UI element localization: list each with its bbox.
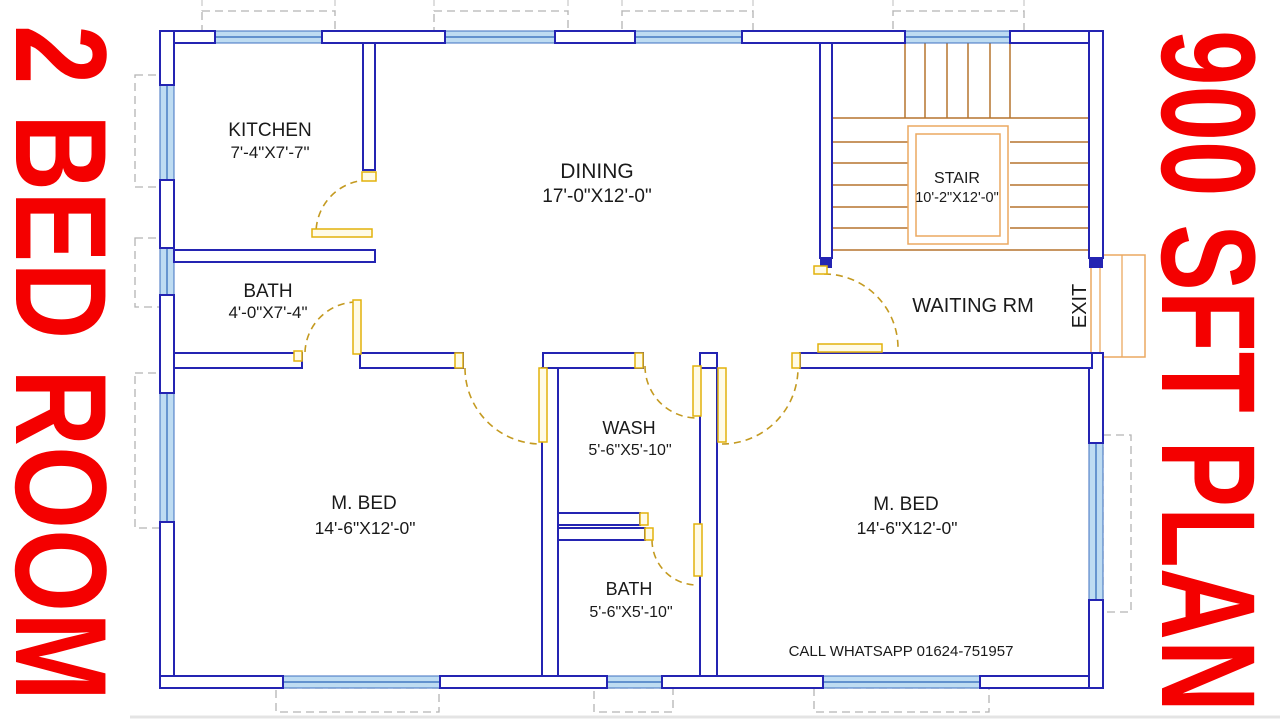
waiting-room-door-leaf — [818, 344, 882, 352]
room-dim-bath-upper: 4'-0"X7'-4" — [228, 303, 307, 322]
room-label-waiting: WAITING RM — [912, 295, 1033, 317]
room-label-exit: EXIT — [1069, 284, 1091, 328]
room-dim-bath-lower: 5'-6"X5'-10" — [589, 604, 672, 621]
banner-right-text: 900 SFT PLAN — [1133, 30, 1280, 712]
floor-plan-drawing: KITCHEN 7'-4"X7'-7" DINING 17'-0"X12'-0"… — [0, 0, 1280, 720]
bath-upper-door-leaf — [353, 300, 361, 354]
mbed-right-door-arc — [722, 368, 798, 444]
room-dim-dining: 17'-0"X12'-0" — [542, 186, 651, 207]
room-label-stair: STAIR — [934, 170, 980, 187]
banner-left-text: 2 BED ROOM — [0, 25, 134, 701]
kitchen-door-arc — [316, 180, 369, 233]
room-dim-mbed-right: 14'-6"X12'-0" — [857, 518, 958, 538]
room-labels: KITCHEN 7'-4"X7'-7" DINING 17'-0"X12'-0"… — [228, 120, 1091, 660]
kitchen-door-leaf — [312, 229, 372, 237]
room-label-bath-lower: BATH — [606, 579, 653, 599]
room-label-mbed-left: M. BED — [331, 493, 396, 514]
bath-upper-door-arc — [305, 302, 357, 352]
wash-door-leaf — [693, 366, 701, 416]
wash-door-arc — [645, 366, 697, 418]
mbed-right-door-leaf — [718, 368, 726, 442]
room-label-dining: DINING — [560, 160, 634, 183]
bath-lower-door-arc — [652, 540, 697, 585]
bath-lower-door-leaf — [694, 524, 702, 576]
room-dim-kitchen: 7'-4"X7'-7" — [230, 143, 309, 162]
waiting-room-door-arc — [824, 274, 898, 348]
mbed-left-door-leaf — [539, 368, 547, 442]
mbed-left-door-arc — [465, 368, 541, 444]
room-dim-mbed-left: 14'-6"X12'-0" — [315, 518, 416, 538]
room-label-mbed-right: M. BED — [873, 494, 938, 515]
room-dim-wash: 5'-6"X5'-10" — [588, 442, 671, 459]
contact-text: CALL WHATSAPP 01624-751957 — [789, 643, 1014, 660]
room-label-kitchen: KITCHEN — [228, 120, 311, 141]
room-dim-stair: 10'-2"X12'-0" — [915, 190, 999, 206]
thumbnail-canvas: KITCHEN 7'-4"X7'-7" DINING 17'-0"X12'-0"… — [0, 0, 1280, 720]
room-label-bath-upper: BATH — [243, 281, 292, 302]
room-label-wash: WASH — [602, 418, 655, 438]
staircase — [832, 43, 1090, 250]
